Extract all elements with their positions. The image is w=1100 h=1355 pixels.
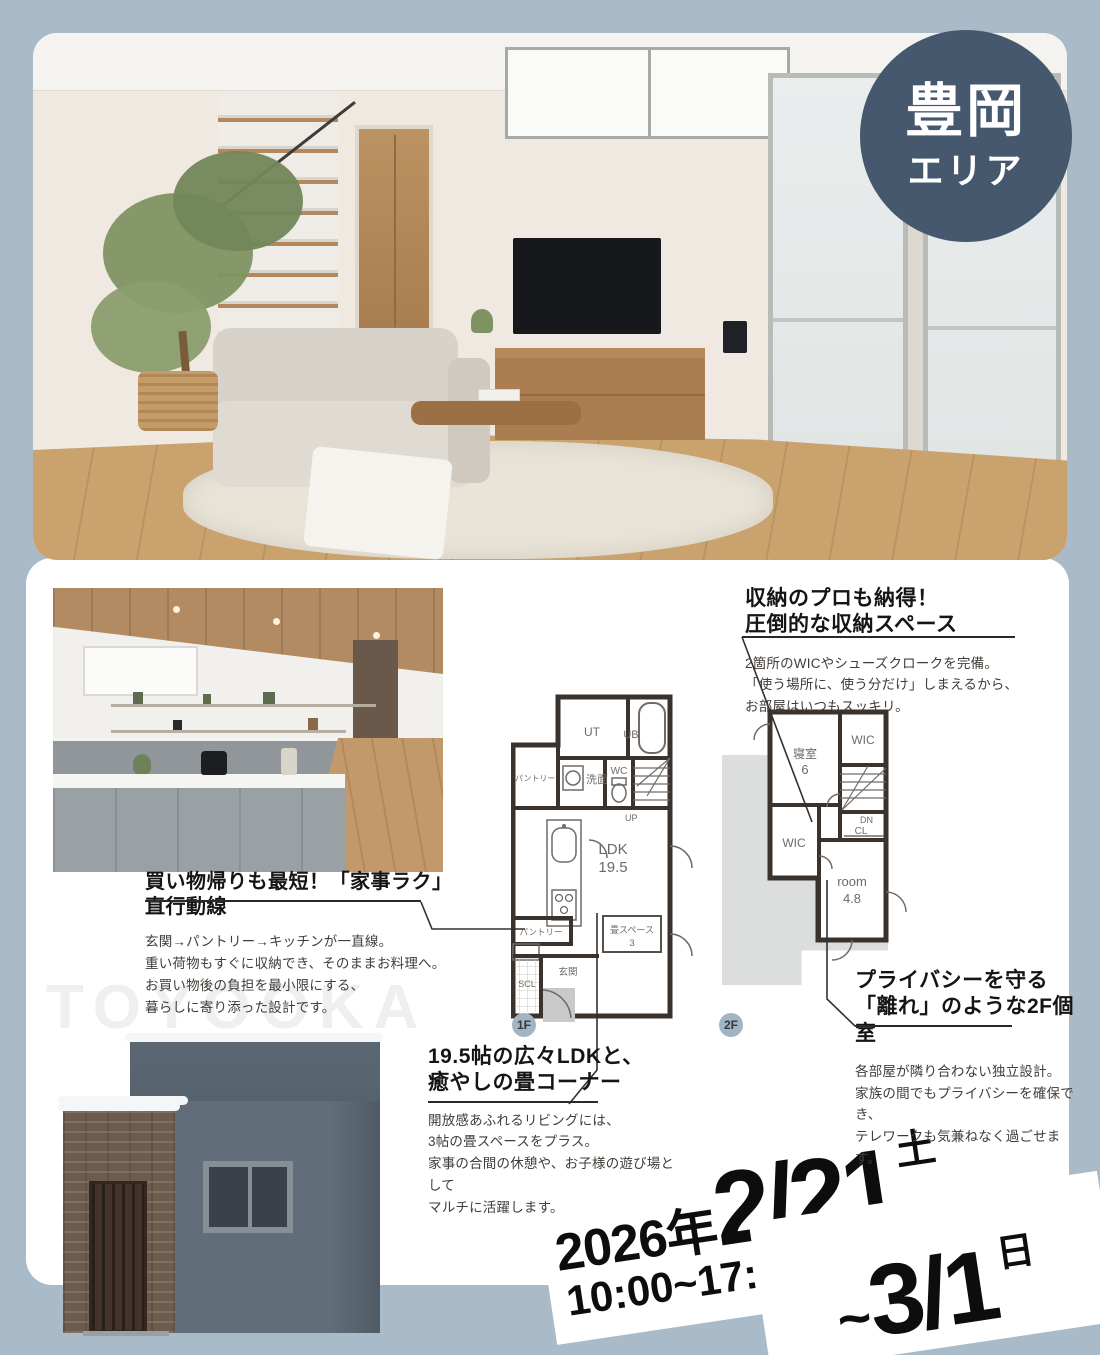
- coffee-table: [411, 401, 581, 425]
- floor-chip-1f: 1F: [512, 1013, 536, 1037]
- area-badge-suffix: エリア: [907, 153, 1024, 189]
- shelf-item: [263, 692, 275, 704]
- feature-kaji-rule: [145, 900, 421, 902]
- feature-privacy-body-3: テレワークも気兼ねなく過ごせます。: [855, 1126, 1075, 1170]
- room-label-wc: WC: [611, 766, 628, 777]
- room-label-ldk-size: 19.5: [598, 859, 627, 876]
- feature-privacy-title-1: プライバシーを守る: [855, 968, 1075, 994]
- wood-door: [355, 125, 433, 337]
- feature-storage-title-1: 収納のプロも納得！: [745, 586, 1045, 612]
- wall-shelf: [111, 704, 376, 707]
- feature-ldk-rule: [428, 1101, 598, 1103]
- area-badge: 豊岡 エリア: [860, 30, 1072, 242]
- room-label-genkan: 玄関: [558, 966, 577, 978]
- room-label-senmen: 洗面: [586, 773, 608, 786]
- feature-privacy-rule: [855, 1025, 1012, 1027]
- feature-privacy-body-1: 各部屋が隣り合わない独立設計。: [855, 1061, 1075, 1083]
- room-label-tatami-size: 3: [629, 938, 634, 949]
- tv-screen: [513, 238, 661, 334]
- room-label-scl: SCL: [518, 979, 536, 989]
- throw-blanket: [303, 446, 453, 560]
- feature-ldk-body-3: 家事の合間の休憩や、お子様の遊び場として: [428, 1153, 678, 1197]
- feature-storage-body-3: お部屋はいつもスッキリ。: [745, 696, 1045, 718]
- wall-shelf: [111, 730, 346, 733]
- feature-storage-rule: [742, 636, 1015, 638]
- shelf-item: [203, 694, 211, 704]
- clerestory-window: [505, 47, 790, 139]
- room-label-ut: UT: [584, 725, 601, 739]
- shelf-item: [173, 720, 182, 730]
- feature-storage-body-2: 「使う場所に、使う分だけ」しまえるから、: [745, 674, 1045, 696]
- feature-ldk-body-2: 3帖の畳スペースをプラス。: [428, 1131, 678, 1153]
- tree-foliage: [91, 281, 211, 373]
- speaker: [723, 321, 747, 353]
- room-label-bedroom: 寝室: [793, 746, 817, 761]
- area-badge-name: 豊岡: [905, 83, 1027, 141]
- tv-console: [495, 348, 705, 440]
- house-shading: [330, 1101, 380, 1333]
- flyer-page: 豊岡 エリア TOYOOKA: [0, 0, 1100, 1355]
- tree-foliage: [173, 151, 303, 251]
- room-label-up: UP: [625, 813, 638, 823]
- kitchen-window: [83, 646, 198, 696]
- feature-storage-body-1: 2箇所のWICやシューズクロークを完備。: [745, 653, 1045, 675]
- small-plant: [471, 309, 493, 333]
- feature-storage: 収納のプロも納得！ 圧倒的な収納スペース 2箇所のWICやシューズクロークを完備…: [745, 586, 1045, 718]
- feature-ldk-body-1: 開放感あふれるリビングには、: [428, 1110, 678, 1132]
- floor-chip-2f: 2F: [719, 1013, 743, 1037]
- feature-ldk-title-2: 癒やしの畳コーナー: [428, 1070, 678, 1096]
- feature-kaji-body-4: 暮らしに寄り添った設計です。: [145, 997, 455, 1019]
- room-label-room-size: 4.8: [843, 891, 861, 906]
- room-label-ub: UB: [623, 729, 638, 741]
- room-label-cl: CL: [855, 826, 868, 837]
- feature-privacy-title-2: 「離れ」のような2F個室: [855, 994, 1075, 1047]
- room-label-wic-left: WIC: [782, 836, 806, 850]
- feature-kaji: 買い物帰りも最短！「家事ラク」直行動線 玄関→パントリー→キッチンが一直線。 重…: [145, 870, 455, 1018]
- feature-privacy-body-2: 家族の間でもプライバシーを確保でき、: [855, 1083, 1075, 1127]
- entrance-step: [83, 1331, 169, 1336]
- kettle: [201, 751, 227, 775]
- feature-ldk-title-1: 19.5帖の広々LDKと、: [428, 1044, 678, 1070]
- ceiling-light: [173, 606, 180, 613]
- ceiling-light: [373, 632, 380, 639]
- room-label-pantry-mid: パントリー: [520, 927, 563, 937]
- event-end-day: 日: [994, 1231, 1037, 1274]
- counter-plant: [133, 754, 151, 774]
- house-window: [203, 1161, 293, 1233]
- kitchen-island: [53, 788, 345, 872]
- room-label-ldk: LDK: [598, 841, 627, 858]
- entrance-door: [89, 1181, 147, 1333]
- snow-cap: [125, 1033, 383, 1042]
- room-label-tatami: 畳スペース: [610, 925, 654, 935]
- feature-storage-title-2: 圧倒的な収納スペース: [745, 612, 1045, 638]
- room-label-wic-top: WIC: [851, 733, 875, 747]
- counter-vase: [281, 748, 297, 775]
- house-exterior-photo: [25, 1035, 390, 1335]
- feature-kaji-title: 買い物帰りも最短！「家事ラク」直行動線: [145, 870, 455, 920]
- floorplan-1f: UT UB パントリー 洗面 WC UP LDK 19.5 パントリー 畳スペー…: [511, 694, 711, 1028]
- feature-kaji-body-2: 重い荷物もすぐに収納でき、そのままお料理へ。: [145, 953, 455, 975]
- feature-kaji-body-1: 玄関→パントリー→キッチンが一直線。: [145, 931, 455, 953]
- feature-privacy: プライバシーを守る 「離れ」のような2F個室 各部屋が隣り合わない独立設計。 家…: [855, 968, 1075, 1170]
- kitchen-photo: [53, 588, 443, 872]
- feature-ldk: 19.5帖の広々LDKと、 癒やしの畳コーナー 開放感あふれるリビングには、 3…: [428, 1044, 678, 1219]
- room-label-pantry-top: パントリー: [515, 774, 555, 783]
- tree-basket: [138, 371, 218, 431]
- event-end-date: 3/1: [863, 1244, 1001, 1344]
- feature-ldk-body-4: マルチに活躍します。: [428, 1197, 678, 1219]
- shelf-item: [133, 692, 143, 704]
- feature-kaji-body-3: お買い物後の負担を最小限にする、: [145, 975, 455, 997]
- ceiling-light: [273, 618, 280, 625]
- room-label-room: room: [837, 874, 867, 889]
- shelf-item: [308, 718, 318, 730]
- book: [478, 389, 520, 401]
- snow-cap: [58, 1102, 180, 1111]
- kitchen-doorway: [353, 640, 398, 745]
- floorplan-2f: 寝室 6 WIC DN WIC CL room 4.8: [748, 706, 908, 970]
- island-countertop: [53, 774, 345, 788]
- room-label-dn: DN: [860, 815, 873, 825]
- room-label-bedroom-size: 6: [801, 762, 808, 777]
